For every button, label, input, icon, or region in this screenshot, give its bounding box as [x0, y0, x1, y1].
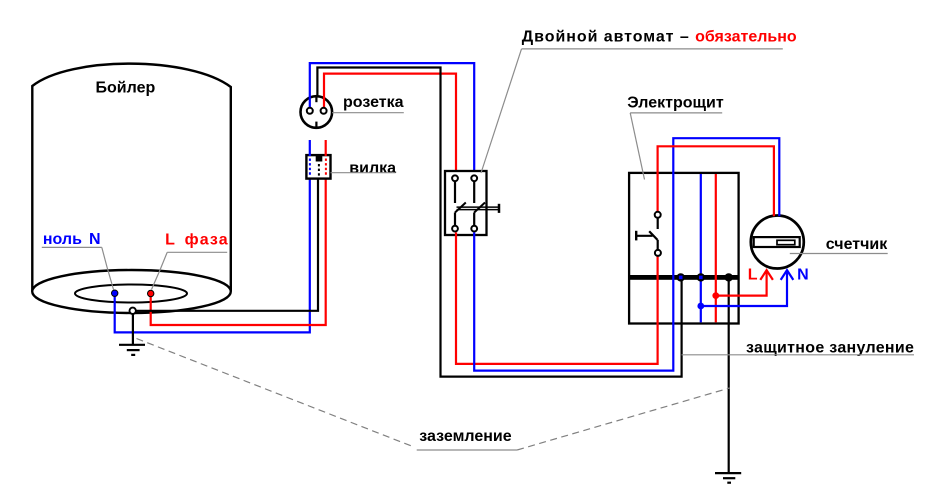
svg-text:ноль: ноль	[43, 231, 82, 248]
svg-text:L: L	[748, 267, 758, 284]
svg-text:розетка: розетка	[343, 94, 404, 111]
svg-text:заземление: заземление	[419, 428, 511, 445]
svg-text:N: N	[89, 231, 101, 248]
svg-text:счетчик: счетчик	[826, 236, 888, 253]
svg-text:Электрощит: Электрощит	[627, 94, 724, 111]
svg-text:Двойной автомат – обязательно: Двойной автомат – обязательно	[522, 29, 797, 46]
svg-text:вилка: вилка	[349, 160, 396, 177]
svg-text:L: L	[165, 232, 175, 249]
svg-text:Бойлер: Бойлер	[96, 80, 156, 97]
svg-text:защитное зануление: защитное зануление	[746, 340, 914, 357]
svg-text:фаза: фаза	[185, 232, 229, 249]
svg-text:N: N	[797, 267, 809, 284]
